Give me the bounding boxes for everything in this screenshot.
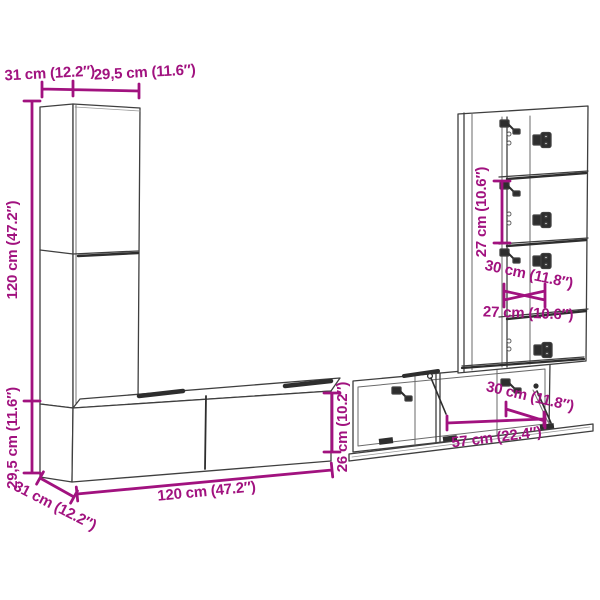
diagram-canvas: 31 cm (12.2″) 29,5 cm (11.6″) 120 cm (47… bbox=[0, 0, 600, 600]
dim-right-width-label: 27 cm (10.6″) bbox=[483, 303, 574, 323]
dim-top-width-line bbox=[42, 81, 139, 98]
dim-right-compartment-height-label: 27 cm (10.6″) bbox=[473, 167, 490, 258]
dim-center-height-label: 26 cm (10.2″) bbox=[334, 382, 351, 473]
furniture-dimension-diagram: 31 cm (12.2″) 29,5 cm (11.6″) 120 cm (47… bbox=[0, 0, 600, 600]
dim-top-width-label: 29,5 cm (11.6″) bbox=[94, 61, 197, 83]
left-tall-cabinet bbox=[40, 104, 140, 408]
dim-left-height-label: 120 cm (47.2″) bbox=[4, 200, 21, 299]
dim-bottom-length-label: 120 cm (47.2″) bbox=[157, 478, 257, 504]
dim-left-lower-height-label: 29,5 cm (11.6″) bbox=[4, 387, 21, 489]
door-hinge bbox=[533, 254, 551, 269]
dim-top-depth-label: 31 cm (12.2″) bbox=[4, 63, 95, 85]
dim-left-height-line bbox=[24, 101, 40, 473]
door-hinge bbox=[534, 343, 552, 358]
door-hinge bbox=[533, 133, 551, 148]
screw bbox=[533, 383, 538, 388]
door-hinge bbox=[533, 213, 551, 228]
